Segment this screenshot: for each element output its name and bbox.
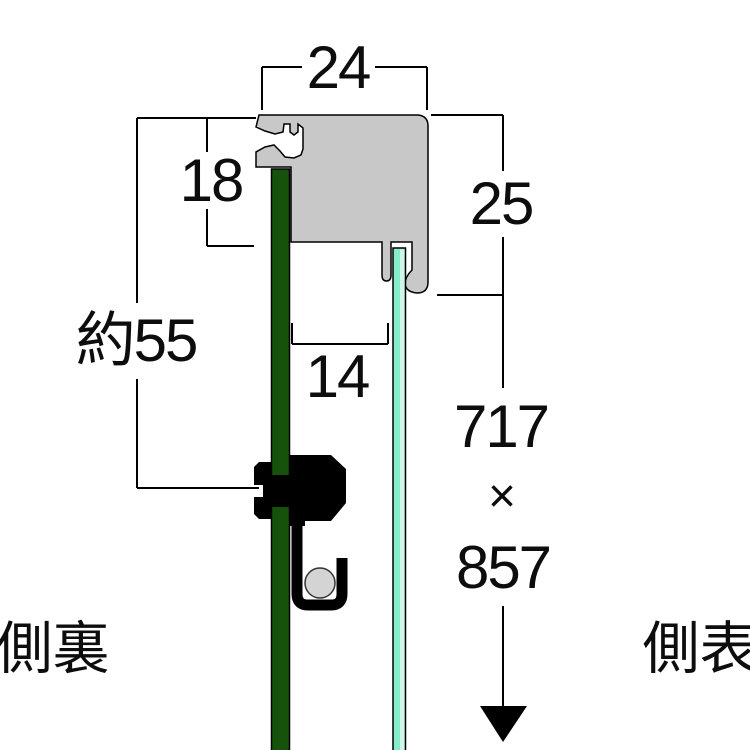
dim-label-front-height: 25: [470, 174, 533, 234]
backing-board: [272, 169, 290, 750]
clip-screw-head: [254, 462, 272, 519]
dim-label-back-opening: 約55: [76, 311, 197, 371]
clip-body: [289, 455, 346, 526]
back-side-label: 裏側: [0, 618, 104, 706]
front-side-label: 表側: [637, 618, 750, 706]
glass-highlight: [400, 250, 405, 750]
dim-label-back-depth: 18: [180, 151, 243, 211]
dim-label-artwork-height: 857: [456, 538, 550, 598]
clip-roller: [305, 568, 335, 598]
dim-label-times-sign: ×: [488, 473, 516, 521]
down-arrow-icon: [480, 706, 527, 742]
dim-label-artwork-width: 717: [454, 397, 548, 457]
clip-cross-band: [271, 475, 290, 507]
dim-label-top-width: 24: [307, 38, 370, 98]
spring-clip-hardware: [254, 455, 346, 605]
dim-label-inner-width: 14: [306, 347, 369, 407]
frame-cross-section-diagram: 24 18 約55 14 25 717 × 857 裏側 表側: [0, 0, 750, 750]
